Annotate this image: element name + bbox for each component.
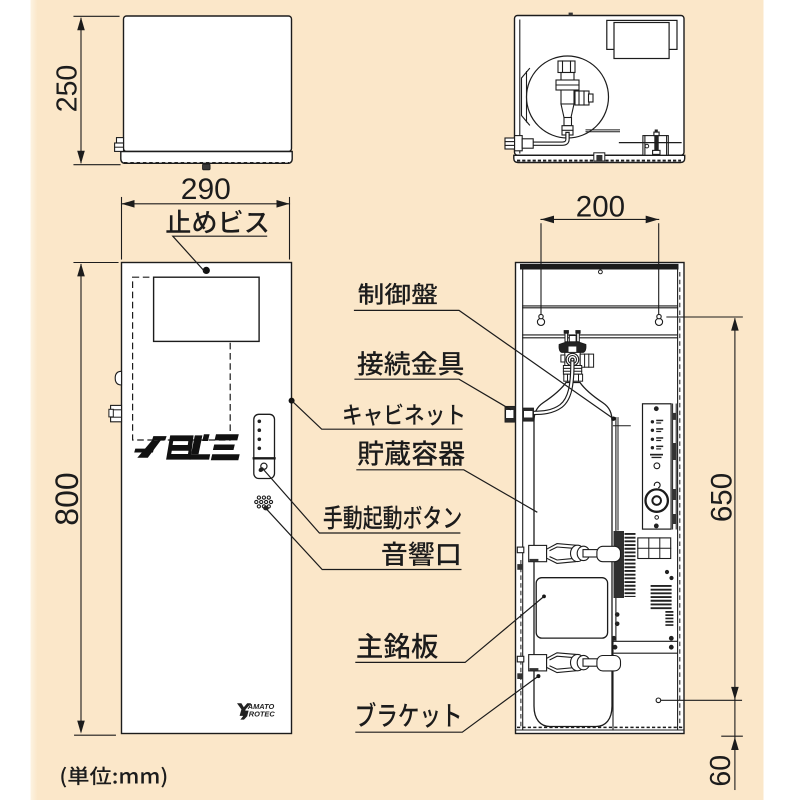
svg-text:290: 290 [181,173,231,206]
svg-text:250: 250 [52,65,84,113]
svg-text:60: 60 [705,755,737,787]
svg-text:200: 200 [576,190,625,223]
svg-text:650: 650 [705,473,738,522]
svg-text:ROTEC: ROTEC [249,710,276,719]
svg-text:800: 800 [49,472,85,525]
